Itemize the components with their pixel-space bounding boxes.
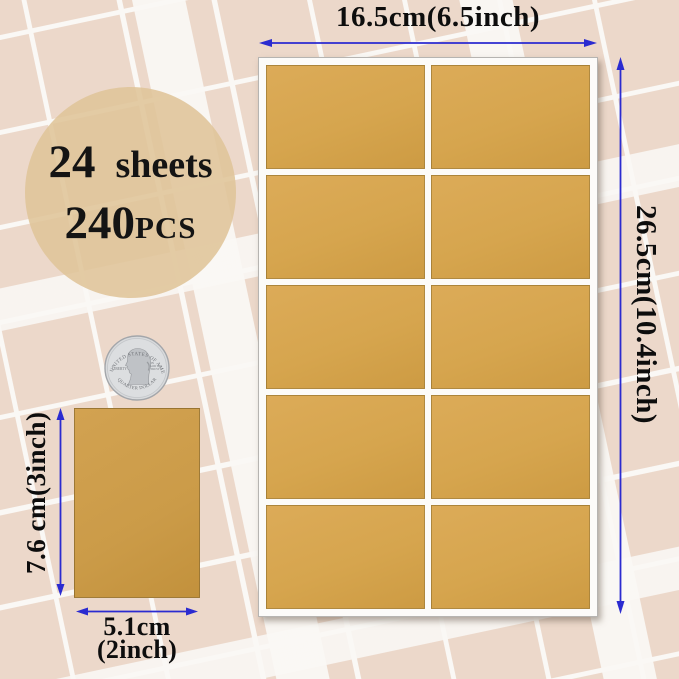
product-image-canvas: 24 sheets 240 PCS 16.5cm(6.5inch) 26.5cm… bbox=[0, 0, 679, 679]
kraft-label bbox=[431, 65, 590, 169]
coin-liberty-text: LIBERTY bbox=[112, 367, 127, 371]
pcs-label: PCS bbox=[135, 212, 197, 243]
coin-motto-line3: TRUST bbox=[151, 368, 160, 371]
label-width-label: 5.1cm (2inch) bbox=[57, 615, 217, 661]
label-height-arrow bbox=[54, 407, 67, 597]
label-sheet bbox=[258, 57, 598, 617]
count-badge: 24 sheets 240 PCS bbox=[25, 87, 236, 298]
label-height-label: 7.6 cm(3inch) bbox=[21, 412, 52, 574]
kraft-label bbox=[266, 65, 425, 169]
quarter-coin: UNITED STATES OF AMERICA QUARTER DOLLAR … bbox=[104, 335, 170, 401]
pcs-count-line: 240 PCS bbox=[64, 200, 196, 247]
sheets-count-line: 24 sheets bbox=[48, 139, 212, 186]
kraft-label bbox=[266, 285, 425, 389]
kraft-label bbox=[431, 395, 590, 499]
kraft-label bbox=[266, 395, 425, 499]
sheet-height-arrow bbox=[614, 56, 627, 615]
single-label bbox=[74, 408, 200, 598]
sheets-count: 24 bbox=[48, 139, 95, 186]
label-width-inch: (2inch) bbox=[57, 638, 217, 661]
sheets-label: sheets bbox=[115, 146, 212, 184]
sheet-height-label: 26.5cm(10.4inch) bbox=[629, 205, 662, 424]
kraft-label bbox=[266, 175, 425, 279]
kraft-label bbox=[266, 505, 425, 609]
kraft-label bbox=[431, 285, 590, 389]
sheet-width-arrow bbox=[258, 36, 598, 50]
sheet-width-label: 16.5cm(6.5inch) bbox=[268, 1, 608, 34]
pcs-count: 240 bbox=[64, 200, 135, 247]
kraft-label bbox=[431, 505, 590, 609]
kraft-label bbox=[431, 175, 590, 279]
